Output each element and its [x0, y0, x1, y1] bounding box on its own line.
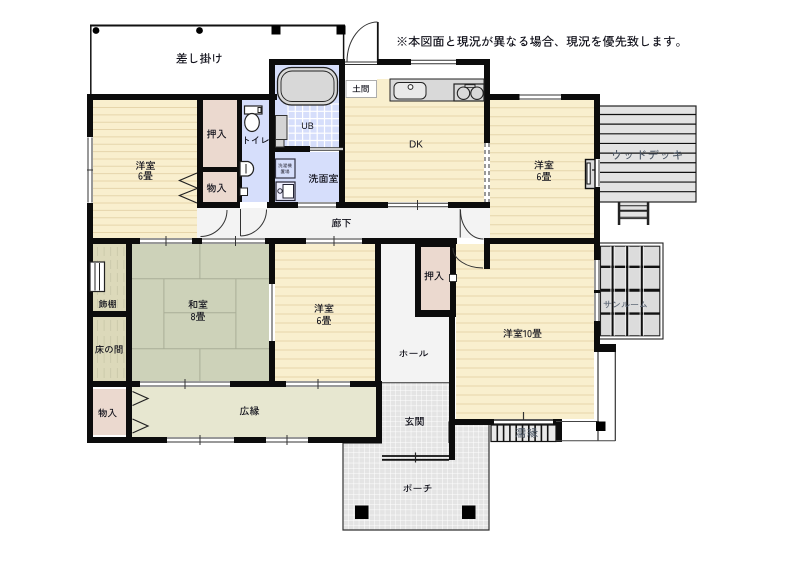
- svg-text:UB: UB: [301, 121, 314, 131]
- svg-text:DK: DK: [409, 140, 423, 151]
